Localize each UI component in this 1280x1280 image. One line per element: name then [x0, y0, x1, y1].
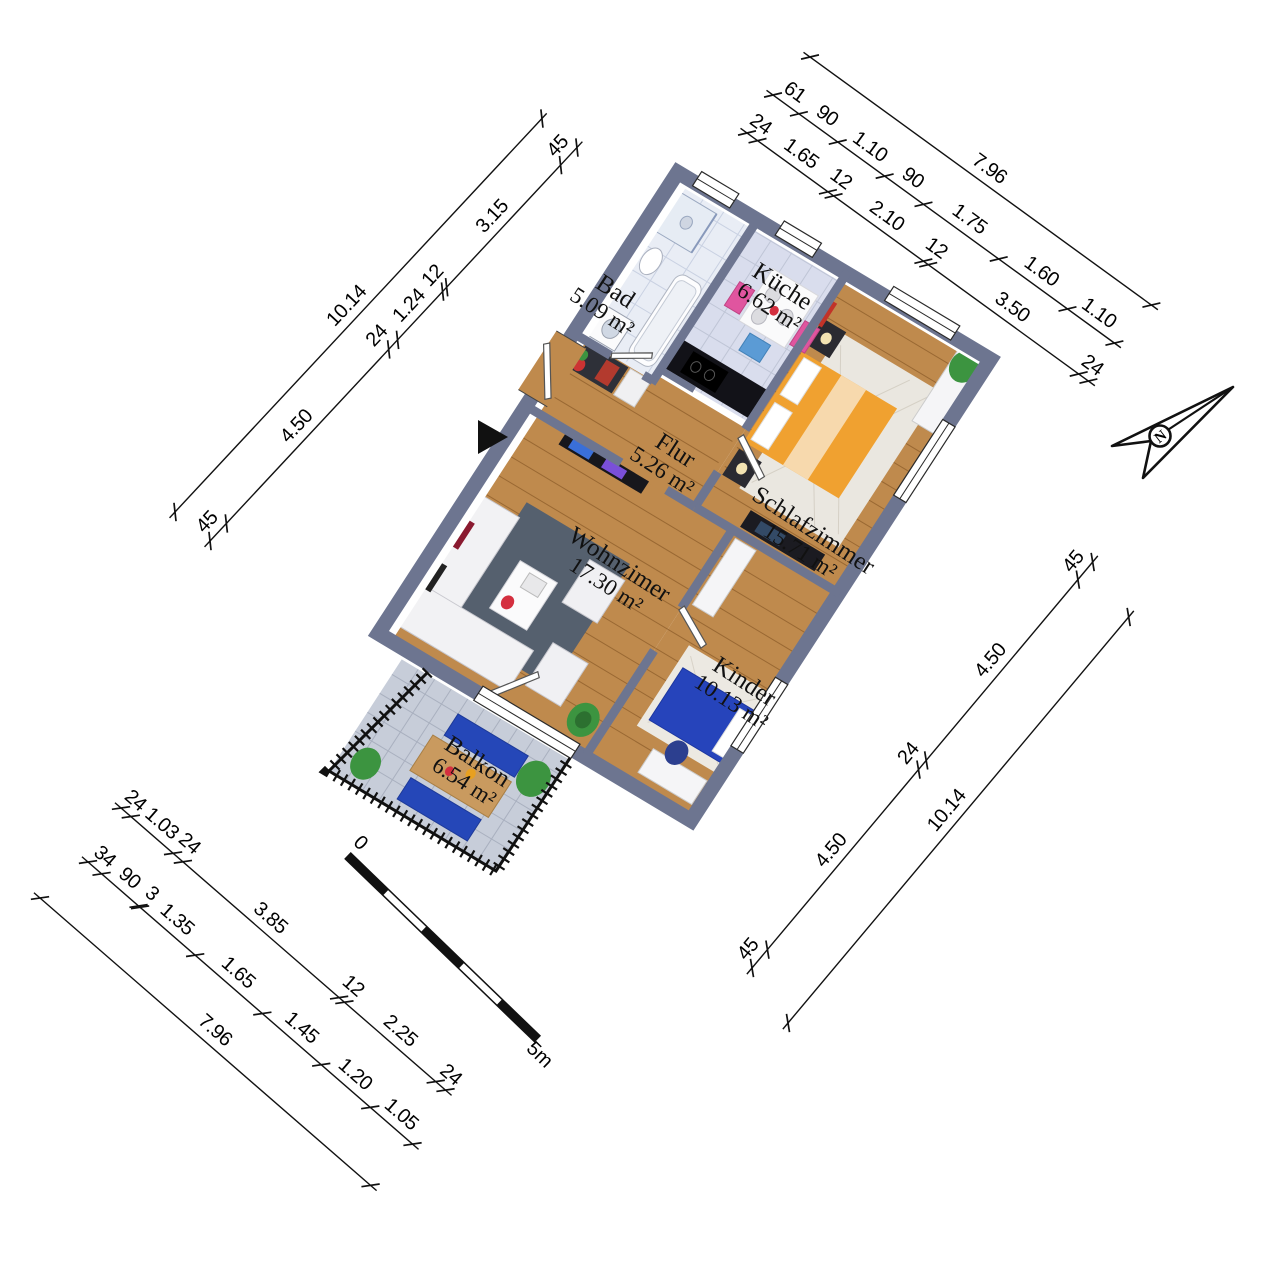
dim-label: 7.96 — [968, 149, 1011, 189]
dim-label: 24 — [893, 738, 924, 769]
scale-start-label: 0 — [349, 831, 372, 855]
dim-label: 4.50 — [970, 639, 1011, 682]
dim-label: 4.50 — [811, 829, 852, 872]
dim-label: 1.60 — [1020, 252, 1063, 292]
dim-label: 1.75 — [948, 199, 991, 239]
dim-label: 3.85 — [249, 898, 292, 939]
dim-label: 1.10 — [848, 127, 891, 167]
dim-label: 12 — [826, 164, 857, 195]
dim-label: 1.03 — [140, 803, 183, 844]
dim-label: 3.15 — [472, 195, 514, 238]
dim-label: 12 — [417, 260, 448, 291]
dim-label: 4.50 — [276, 405, 318, 448]
dim-label: 1.24 — [388, 284, 430, 327]
dim-label: 1.45 — [280, 1007, 323, 1048]
scale-end-label: 5m — [522, 1037, 557, 1072]
dim-label: 3.50 — [991, 287, 1034, 327]
bath-door — [611, 353, 652, 359]
scale-bar: 0 5m — [329, 831, 576, 1072]
dim-label: 1.20 — [334, 1054, 377, 1095]
apartment-plan — [284, 152, 1004, 945]
floorplan-page: Bad 5.09 m² Küche 6.62 m² Flur 5.26 m² S… — [0, 0, 1280, 1280]
dim-label: 1.35 — [156, 899, 199, 940]
dim-label: 1.05 — [380, 1094, 423, 1135]
dimension-chain-se-outer: 10.14 — [763, 594, 1139, 1033]
dim-label: 1.10 — [1077, 293, 1120, 333]
dim-label: 12 — [921, 233, 952, 264]
dim-label: 7.96 — [194, 1010, 237, 1051]
north-arrow: N — [1112, 387, 1233, 478]
dim-label: 2.10 — [865, 196, 908, 236]
dimension-chain-sw-middle: 34 90 3 1.35 1.65 1.45 1.20 1.05 — [77, 835, 437, 1155]
dim-label: 24 — [174, 828, 205, 859]
dim-label: 3 — [141, 882, 164, 906]
floorplan-canvas: Bad 5.09 m² Küche 6.62 m² Flur 5.26 m² S… — [0, 0, 1280, 1280]
dim-label: 10.14 — [923, 785, 971, 836]
dim-label: 2.25 — [379, 1010, 422, 1051]
dim-label: 10.14 — [322, 280, 371, 330]
dim-label: 1.65 — [780, 134, 823, 174]
dimension-chain-sw-outer: 7.96 — [29, 873, 393, 1196]
entrance-door — [544, 343, 551, 399]
dim-label: 1.65 — [217, 952, 260, 993]
